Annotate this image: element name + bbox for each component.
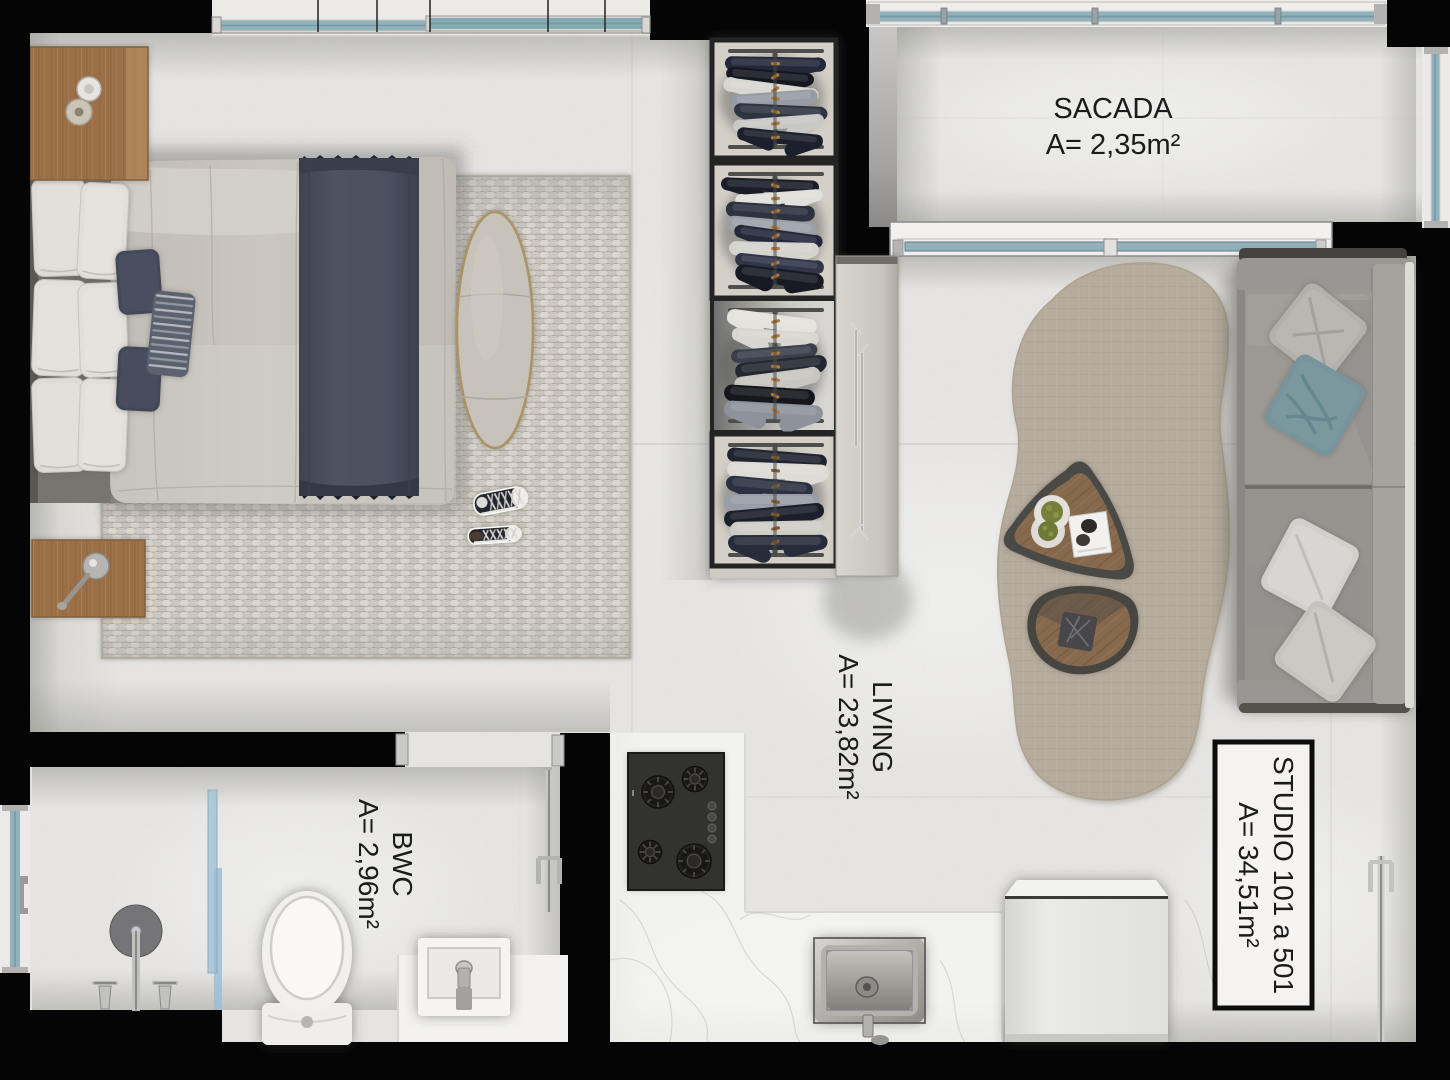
svg-text:BWC: BWC bbox=[387, 831, 418, 896]
svg-text:SACADA: SACADA bbox=[1053, 93, 1173, 125]
svg-text:A= 34,51m²: A= 34,51m² bbox=[1233, 802, 1264, 948]
svg-text:A= 23,82m²: A= 23,82m² bbox=[833, 654, 864, 800]
svg-text:A= 2,35m²: A= 2,35m² bbox=[1046, 129, 1181, 161]
svg-text:LIVING: LIVING bbox=[867, 681, 898, 773]
svg-text:STUDIO 101 a 501: STUDIO 101 a 501 bbox=[1268, 756, 1299, 994]
svg-text:A= 2,96m²: A= 2,96m² bbox=[353, 799, 384, 929]
